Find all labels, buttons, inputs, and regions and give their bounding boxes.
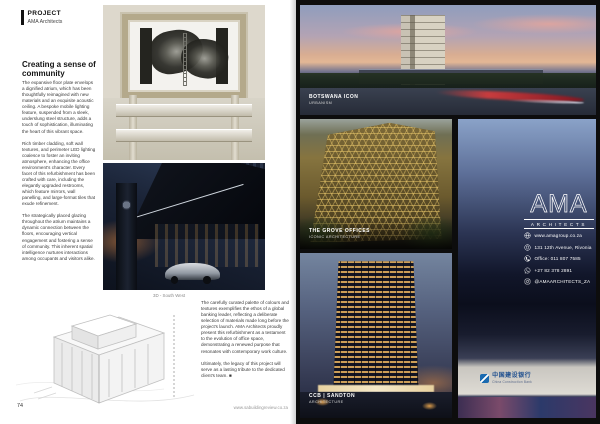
whatsapp-icon — [524, 267, 531, 274]
contact-text: +27 82 378 2891 — [535, 268, 573, 273]
right-page-advert: BOTSWANA ICON URBANISM THE GROVE OFFICES… — [296, 0, 600, 424]
street-light — [422, 402, 437, 410]
contact-list: www.amagroup.co.za 131 12th Avenue, Rivo… — [524, 232, 596, 290]
image-caption: THE GROVE OFFICES ICONIC ARCHITECTURE — [309, 228, 370, 239]
contact-text: Office: 011 807 7585 — [535, 256, 581, 261]
ccb-sandton-render: CCB | SANDTON ARCHITECTURE — [300, 253, 452, 418]
image-caption: BOTSWANA ICON URBANISM — [309, 94, 358, 105]
caption-subtitle: ICONIC ARCHITECTURE — [309, 235, 370, 239]
ccb-sign-text: 中国建设银行 China Construction Bank — [492, 373, 532, 384]
contact-website: www.amagroup.co.za — [524, 232, 596, 239]
paragraph: Ultimately, the legacy of this project w… — [201, 361, 290, 379]
ccb-sign-english: China Construction Bank — [492, 380, 532, 384]
atrium-photo — [103, 5, 265, 160]
entrance-canopy-photo — [103, 163, 265, 290]
contact-phone: Office: 011 807 7585 — [524, 255, 596, 262]
kicker-title: PROJECT — [28, 10, 63, 17]
kicker-subtitle: AMA Architects — [28, 19, 63, 25]
magazine-website: www.sabuildingreview.co.za — [198, 405, 288, 410]
ccb-sign-chinese: 中国建设银行 — [492, 373, 532, 379]
kicker-bar — [21, 10, 24, 25]
atrium-ladder — [183, 33, 188, 86]
grove-offices-render: THE GROVE OFFICES ICONIC ARCHITECTURE — [300, 119, 452, 249]
render-tower — [333, 261, 418, 390]
kicker-text: PROJECT AMA Architects — [28, 10, 63, 25]
glass-band — [458, 397, 596, 418]
location-pin-icon — [524, 244, 531, 251]
contact-text: www.amagroup.co.za — [535, 233, 583, 238]
caption-title: BOTSWANA ICON — [309, 94, 358, 100]
atrium-walkway — [116, 129, 252, 142]
article-heading: Creating a sense of community — [22, 60, 100, 78]
article-column-2: The carefully curated palette of colours… — [201, 300, 290, 385]
magazine-spread: PROJECT AMA Architects Creating a sense … — [0, 0, 600, 424]
contact-instagram: @AMAARCHITECTS_ZA — [524, 278, 596, 285]
contact-address: 131 12th Avenue, Rivonia — [524, 244, 596, 251]
ccb-bank-logo-icon — [480, 374, 489, 383]
page-number: 74 — [17, 403, 23, 409]
logo-subtitle: ARCHITECTS — [524, 219, 594, 229]
axonometric-sketch — [14, 293, 200, 415]
atrium-walkway — [116, 104, 252, 117]
article-kicker: PROJECT AMA Architects — [21, 10, 62, 25]
cloud — [472, 14, 596, 34]
contact-text: @AMAARCHITECTS_ZA — [535, 279, 591, 284]
paragraph: The expansive floor plate envelops a dig… — [22, 80, 96, 135]
phone-icon — [524, 255, 531, 262]
drawing-caption: 3D - South West — [153, 293, 185, 298]
caption-title: CCB | SANDTON — [309, 393, 355, 399]
logo-wordmark: AMA — [524, 192, 594, 217]
caption-subtitle: ARCHITECTURE — [309, 400, 355, 404]
contact-text: 131 12th Avenue, Rivonia — [535, 245, 592, 250]
car-wheel — [171, 276, 178, 284]
glass-facade — [155, 224, 259, 267]
globe-icon — [524, 232, 531, 239]
caption-subtitle: URBANISM — [309, 101, 358, 105]
paragraph: Rich timber cladding, soft wall textures… — [22, 141, 96, 208]
axonometric-drawing — [14, 293, 200, 415]
paragraph: The carefully curated palette of colours… — [201, 300, 290, 355]
article-column-1: The expansive floor plate envelops a dig… — [22, 80, 96, 268]
left-page: PROJECT AMA Architects Creating a sense … — [0, 0, 296, 424]
image-caption: CCB | SANDTON ARCHITECTURE — [309, 393, 355, 404]
ccb-signage: 中国建设银行 China Construction Bank — [480, 373, 532, 384]
instagram-icon — [524, 278, 531, 285]
botswana-icon-render: BOTSWANA ICON URBANISM — [300, 5, 596, 115]
car-wheel — [203, 276, 210, 284]
ama-architects-logo: AMA ARCHITECTS — [524, 192, 594, 229]
contact-whatsapp: +27 82 378 2891 — [524, 267, 596, 274]
paragraph: The strategically placed glazing through… — [22, 213, 96, 262]
caption-title: THE GROVE OFFICES — [309, 228, 370, 234]
lit-podium-band — [318, 385, 434, 392]
